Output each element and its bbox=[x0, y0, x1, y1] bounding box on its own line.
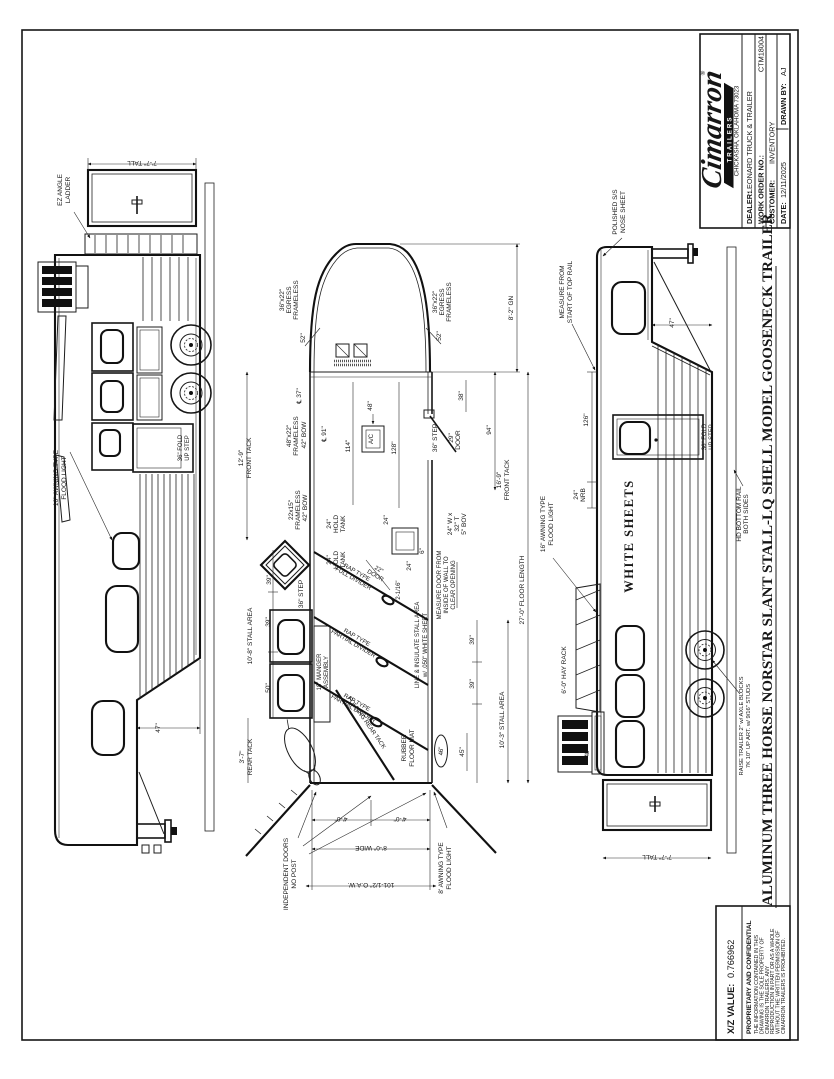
dim-8-0-wide: 8'-0" WIDE bbox=[354, 844, 386, 851]
frameless-2215-label: FRAMELESS bbox=[295, 490, 302, 530]
proprietary-line: CIMARRON TRAILERS IS PROHIBITED. bbox=[781, 938, 787, 1034]
frameless-2215-label: 22x15" bbox=[288, 499, 295, 520]
polished-nose-label: NOSE SHEET bbox=[620, 191, 627, 233]
gooseneck-window bbox=[612, 282, 645, 334]
left-side-view: 7'-7" TALL EZ ANGLE LADDER bbox=[38, 158, 214, 853]
independent-doors-label: INDEPENDENT DOORS bbox=[283, 837, 290, 910]
right-side-view: 47" POLISHED S/S NOSE SHEET MEASURE FROM… bbox=[540, 189, 752, 860]
dealer-row: DEALER: LEONARD TRUCK & TRAILER bbox=[745, 91, 754, 224]
hold-tank-label: HOLD bbox=[333, 515, 340, 533]
partial-divider-label: RAP TYPE PARTIAL DIVIDER bbox=[330, 623, 381, 660]
side-window bbox=[106, 586, 138, 652]
gn-dimension: 8'-2" GN bbox=[508, 295, 515, 320]
dim-39: 39" bbox=[266, 575, 273, 585]
egress-label: 36"x22" bbox=[432, 290, 439, 313]
egress-label: EGRESS bbox=[286, 286, 293, 314]
fold-step-label: 36" FOLD bbox=[178, 434, 184, 461]
bov-label: 5" BOV bbox=[461, 513, 468, 535]
gooseneck-window bbox=[92, 701, 124, 755]
dim-128: 128" bbox=[391, 441, 398, 455]
frameless-48-label: 42" BOW bbox=[301, 421, 308, 449]
vent-stack bbox=[38, 262, 88, 312]
side-window bbox=[113, 533, 139, 569]
flood-light-label: FLOOD LIGHT bbox=[548, 502, 555, 545]
drop-dimension: 47" bbox=[155, 723, 162, 733]
customer-row: CUSTOMER: INVENTORY bbox=[768, 122, 777, 224]
trailer-drawing: Cimarron TRAILERS ® CHICKASHA, OKLAHOMA … bbox=[0, 0, 834, 1079]
note-line: INSIDE OF WALL TO bbox=[444, 556, 450, 614]
nrb-dim: NRB bbox=[580, 488, 587, 502]
horse-figure bbox=[274, 715, 329, 790]
fold-up-step-door: 36" FOLD UP STEP bbox=[613, 415, 715, 459]
bottom-rail-strip bbox=[205, 183, 214, 831]
manger-windows bbox=[270, 610, 312, 718]
insulate-note: w/ .050" WHITE SHEET bbox=[423, 613, 429, 678]
xz-label: X/Z VALUE: bbox=[726, 984, 736, 1034]
egress-label: FRAMELESS bbox=[293, 280, 300, 320]
tall-dimension: 7'-7" TALL bbox=[127, 159, 157, 166]
manger-label: ASSEMBLY bbox=[324, 656, 330, 688]
nose-outline bbox=[310, 244, 430, 372]
customer-value: INVENTORY bbox=[768, 122, 777, 164]
centerline-37: ℄ 37" bbox=[296, 388, 303, 405]
frameless-2215-label: 42" BOW bbox=[302, 494, 309, 522]
fold-up-step-panel: 36" FOLD UP STEP bbox=[133, 424, 193, 472]
stall-window bbox=[616, 721, 644, 767]
bov-label: 24" W x bbox=[447, 512, 454, 535]
trailer-outline bbox=[55, 255, 200, 845]
dealer-label: DEALER: bbox=[745, 192, 754, 224]
dim-48: 48" bbox=[367, 401, 374, 411]
tank-box: 24" 24" 6" bbox=[383, 515, 426, 571]
date-row: DATE: 12/11/2025 DRAWN BY: AJ bbox=[776, 67, 789, 224]
dim-126: 126" bbox=[583, 413, 590, 427]
nrb-dim: 24" bbox=[573, 490, 580, 500]
awning-8-label: FLOOD LIGHT bbox=[446, 846, 453, 889]
fold-step-label: 36" FOLD bbox=[702, 423, 708, 450]
note-line: MEASURE DOOR FROM bbox=[437, 551, 443, 620]
flood-light-label: 16" AWNING TYPE bbox=[53, 449, 60, 506]
step-36-label: 36" STEP bbox=[432, 424, 439, 452]
ez-ladder-label: LADDER bbox=[65, 177, 72, 204]
xz-value-row: X/Z VALUE: 0.766962 bbox=[726, 940, 736, 1034]
bottom-rail-strip bbox=[727, 247, 736, 853]
tie-ring bbox=[381, 594, 395, 606]
tie-ring bbox=[375, 656, 389, 668]
bov-label: 32" T bbox=[454, 516, 461, 531]
door-word: DOOR bbox=[455, 430, 462, 450]
fold-step-label: UP STEP bbox=[185, 435, 191, 461]
ac-unit: A/C bbox=[362, 426, 384, 452]
rear-ladder bbox=[85, 234, 197, 254]
dim-39: 39" bbox=[469, 679, 476, 689]
egress-dim: 52" bbox=[436, 331, 443, 341]
dim-4-0: 4'-0" bbox=[334, 815, 348, 822]
awning-8-label: 8' AWNING TYPE bbox=[438, 842, 445, 894]
tank-dim: 24" bbox=[406, 561, 413, 571]
panel-seams bbox=[658, 345, 706, 773]
dim-2-1-16: 2-1/16" bbox=[396, 580, 402, 599]
hd-rail-label: BOTH SIDES bbox=[743, 494, 750, 534]
drawn-by-label: DRAWN BY: bbox=[779, 83, 788, 125]
rubber-mat-label: RUBBER bbox=[401, 734, 408, 761]
dim-114: 114" bbox=[345, 439, 352, 452]
flood-light-label: 16" AWNING TYPE bbox=[540, 495, 547, 552]
dim-50: 50" bbox=[265, 683, 272, 693]
floor-plan: 36"x22" EGRESS FRAMELESS 52" 36"x22" EGR… bbox=[238, 244, 528, 910]
egress-label: 36"x22" bbox=[279, 288, 286, 311]
measure-top-rail-label: MEASURE FROM bbox=[559, 265, 566, 318]
xz-value: 0.766962 bbox=[726, 940, 736, 978]
door-window bbox=[100, 430, 120, 456]
panel-seams bbox=[140, 474, 194, 698]
tank-dim: 24" bbox=[383, 515, 390, 525]
gooseneck-coupler bbox=[652, 244, 698, 263]
stall-window bbox=[616, 626, 644, 670]
brand-name: Cimarron bbox=[696, 68, 728, 191]
tall-dimension: 7'-7" TALL bbox=[642, 853, 672, 860]
hold-tank-dim: 24" bbox=[326, 519, 333, 529]
date-value: 12/11/2025 bbox=[779, 162, 788, 198]
drawing-title-text: ALUMINUM THREE HORSE NORSTAR SLANT STALL… bbox=[760, 213, 776, 906]
ac-label: A/C bbox=[369, 433, 375, 444]
door-29-dim: 29" bbox=[448, 433, 455, 443]
flood-light-label: FLOOD LIGHT bbox=[61, 456, 68, 499]
hold-tank-label: TANK bbox=[340, 515, 347, 533]
white-sheets-label: WHITE SHEETS bbox=[622, 479, 636, 593]
footer-block: X/Z VALUE: 0.766962 PROPRIETARY AND CONF… bbox=[716, 906, 790, 1040]
centerline-91: ℄ 91" bbox=[321, 426, 328, 443]
door-window bbox=[101, 330, 123, 363]
note-line: CLEAR OPENING bbox=[451, 560, 457, 610]
hay-rack-label: 6'-0" HAY RACK bbox=[561, 646, 568, 694]
dim-6: 6" bbox=[419, 547, 426, 554]
stall-area-108: 10'-8" STALL AREA bbox=[247, 607, 254, 664]
rear-ramp bbox=[603, 780, 711, 830]
proprietary-heading: PROPRIETARY AND CONFIDENTIAL bbox=[746, 920, 753, 1034]
dealer-value: LEONARD TRUCK & TRAILER bbox=[745, 91, 754, 193]
ez-ladder-label: EZ ANGLE bbox=[57, 173, 64, 205]
frameless-48-label: 48"x22" bbox=[286, 424, 293, 447]
panel-seams bbox=[143, 257, 188, 321]
floor-length-dim: 27'-0" FLOOR LENGTH bbox=[519, 555, 526, 624]
fold-step-label: UP STEP bbox=[709, 424, 715, 450]
raise-trailer-note: 7K 10" UP ART. w/ 9/16" STUDS bbox=[746, 684, 752, 768]
drawn-by-value: AJ bbox=[779, 67, 788, 76]
wheels bbox=[686, 631, 724, 717]
front-tack-dim: 12'-9" bbox=[238, 449, 245, 466]
measure-top-rail-label: START OF TOP RAIL bbox=[567, 260, 574, 323]
brand-address: CHICKASHA, OKLAHOMA 73023 bbox=[735, 85, 741, 176]
polished-nose-label: POLISHED S/S bbox=[612, 189, 619, 235]
front-tack-169: FRONT TACK bbox=[504, 459, 511, 500]
side-doors bbox=[92, 323, 162, 470]
work-order-value: CTM18004 bbox=[757, 36, 766, 72]
frameless-48-label: FRAMELESS bbox=[293, 416, 300, 456]
measure-door-note: MEASURE DOOR FROM INSIDE OF WALL TO CLEA… bbox=[437, 551, 457, 620]
dim-94: 94" bbox=[486, 425, 493, 435]
egress-dim: 52" bbox=[300, 333, 307, 343]
stall-area-103: 10'-3" STALL AREA bbox=[499, 691, 506, 748]
rear-tack-dim: 3'-7" bbox=[239, 750, 246, 764]
date-label: DATE: bbox=[779, 202, 788, 224]
rear-ramp bbox=[88, 170, 196, 226]
gooseneck-coupler bbox=[137, 772, 177, 853]
dim-38: 38" bbox=[458, 391, 465, 401]
blueprint-sheet: Cimarron TRAILERS ® CHICKASHA, OKLAHOMA … bbox=[0, 0, 834, 1079]
dim-45: 45" bbox=[459, 747, 466, 757]
rear-tack-dim: REAR TACK bbox=[247, 738, 254, 775]
proprietary-paragraph: THE INFORMATION CONTAINED IN THIS DRAWIN… bbox=[754, 928, 787, 1034]
insulate-note: LINE & INSULATE STALL AREA bbox=[415, 602, 421, 689]
rubber-mat-label: FLOOR MAT bbox=[409, 729, 416, 766]
egress-label: EGRESS bbox=[439, 288, 446, 316]
brand-reg-mark: ® bbox=[700, 70, 707, 75]
dim-39: 39" bbox=[469, 635, 476, 645]
dim-46: 46" bbox=[439, 747, 445, 756]
title-block: Cimarron TRAILERS ® CHICKASHA, OKLAHOMA … bbox=[696, 34, 790, 228]
door-window bbox=[620, 422, 650, 454]
front-tack-169: 16'-9" bbox=[496, 471, 503, 488]
drawing-title: ALUMINUM THREE HORSE NORSTAR SLANT STALL… bbox=[760, 213, 776, 908]
brand-sub: TRAILERS bbox=[727, 116, 734, 163]
independent-doors-label: NO POST bbox=[291, 859, 298, 888]
dim-39: 39" bbox=[265, 617, 272, 627]
nose-equipment bbox=[334, 344, 372, 365]
stall-window bbox=[616, 675, 644, 717]
hd-rail-label: HD BOTTOM RAIL bbox=[736, 486, 743, 542]
door-window bbox=[101, 381, 123, 412]
drop-dimension: 47" bbox=[669, 318, 676, 328]
step-36-label: 36" STEP bbox=[298, 580, 305, 608]
work-order-row: WORK ORDER NO.: CTM18004 bbox=[757, 36, 766, 224]
front-tack-dim: FRONT TACK bbox=[246, 437, 253, 478]
dim-oaw: 101-1/2" O.A.W. bbox=[347, 881, 394, 888]
raise-trailer-note: RAISE TRAILER 2" w/ AXLE BLOCKS bbox=[739, 676, 745, 775]
egress-label: FRAMELESS bbox=[446, 282, 453, 322]
dim-4-0: 4'-0" bbox=[393, 815, 407, 822]
cimarron-logo: Cimarron TRAILERS ® bbox=[696, 68, 733, 191]
